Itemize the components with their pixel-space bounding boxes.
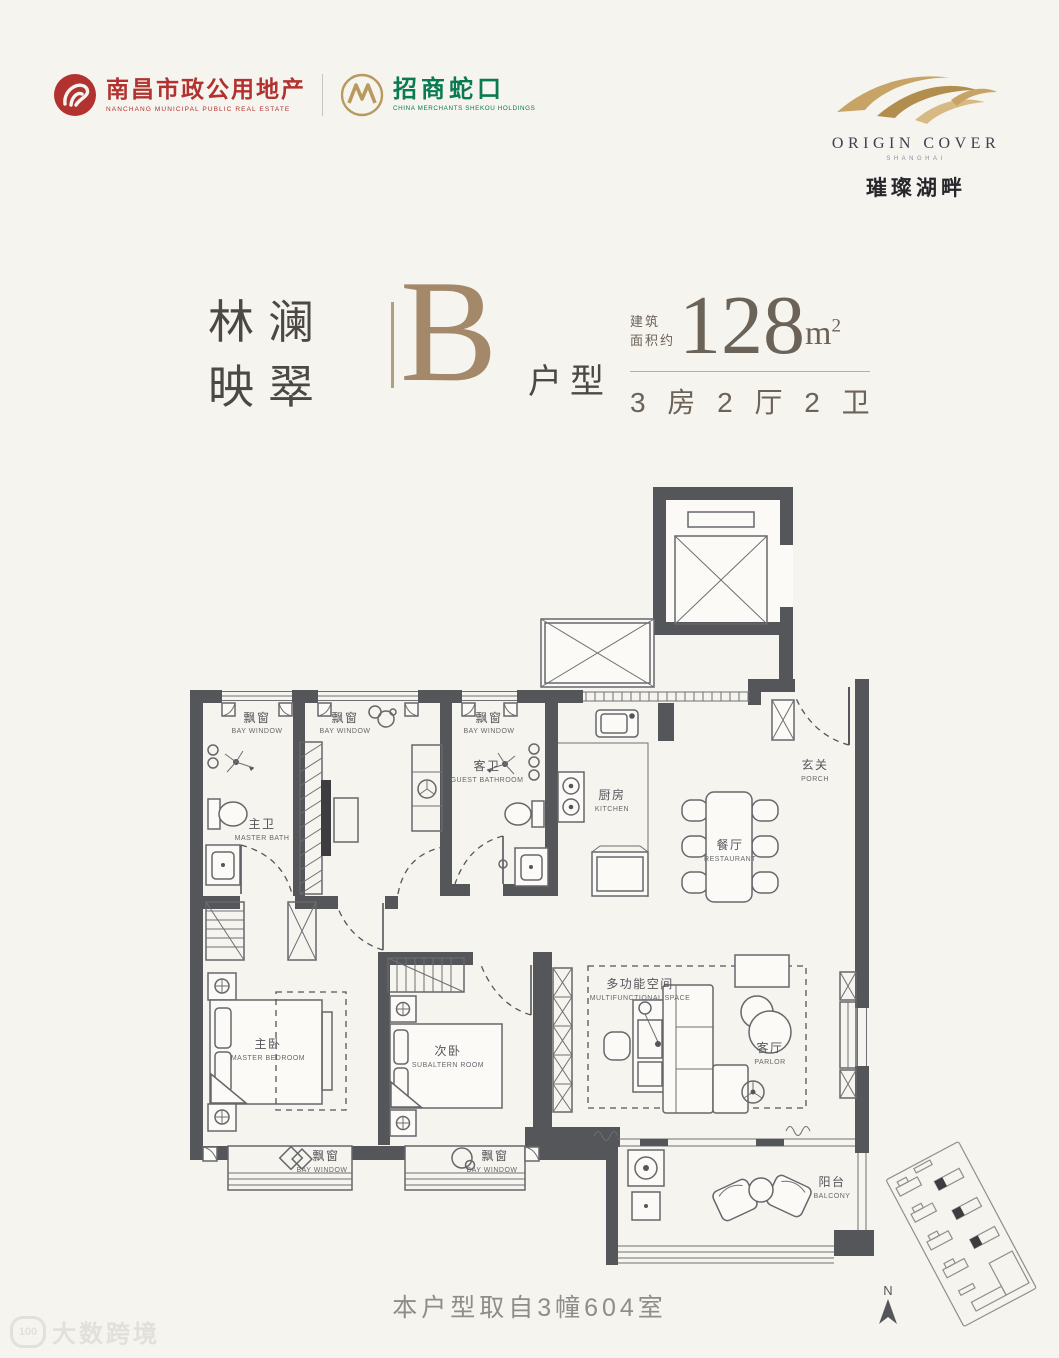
guest-bath-label: 客卫 <box>473 758 500 773</box>
bay-top-1-label: 飘窗 <box>243 711 270 725</box>
diamond-icon <box>280 1147 312 1170</box>
master-bath-fixtures <box>206 745 254 885</box>
bay-bottom-2-label-en: BAY WINDOW <box>466 1167 517 1174</box>
master-bedroom-furniture <box>206 902 346 1131</box>
watermark-logo-icon: 100 <box>10 1316 46 1348</box>
kitchen-fixtures <box>558 710 648 897</box>
porch-label: 玄关 <box>801 757 828 772</box>
watermark: 100 大数跨境 <box>10 1314 160 1349</box>
multifunctional-label: 多功能空间 <box>606 977 674 991</box>
master-bedroom-label-en: MASTER BEDROOM <box>231 1055 305 1062</box>
teddy-icon <box>369 706 396 727</box>
balcony-label-en: BALCONY <box>814 1193 851 1200</box>
restaurant-label: 餐厅 <box>716 837 743 852</box>
parlor-label-en: PARLOR <box>754 1059 785 1066</box>
porch-column <box>772 700 794 740</box>
bay-top-2-label-en: BAY WINDOW <box>319 728 370 735</box>
master-bath-label-en: MASTER BATH <box>235 835 290 842</box>
shower-icon <box>225 751 254 772</box>
watermark-text: 大数跨境 <box>52 1314 160 1349</box>
porch-label-en: PORCH <box>801 776 829 783</box>
guest-bath-label-en: GUEST BATHROOM <box>451 777 524 784</box>
bay-top-1-label-en: BAY WINDOW <box>231 728 282 735</box>
building-core <box>541 487 793 692</box>
kitchen-label-en: KITCHEN <box>595 806 629 813</box>
bay-bottom-1-label-en: BAY WINDOW <box>296 1167 347 1174</box>
parlor-label: 客厅 <box>756 1040 783 1055</box>
bay-top-3-label-en: BAY WINDOW <box>463 728 514 735</box>
bay-bottom-1-label: 飘窗 <box>312 1149 339 1163</box>
kitchen-label: 厨房 <box>598 787 625 802</box>
floorplan-drawing: 飘窗 BAY WINDOW 飘窗 BAY WINDOW 飘窗 BAY WINDO… <box>0 0 1059 1358</box>
parlor-furniture <box>663 955 856 1113</box>
hallway-cabinet <box>553 968 572 1112</box>
dressing-room-furniture <box>300 742 442 894</box>
bay-top-3-label: 飘窗 <box>475 711 502 725</box>
balcony-label: 阳台 <box>818 1174 845 1189</box>
master-bath-label: 主卫 <box>248 817 275 831</box>
poster-page: 南昌市政公用地产 NANCHANG MUNICIPAL PUBLIC REAL … <box>0 0 1059 1358</box>
subaltern-room-label-en: SUBALTERN ROOM <box>412 1062 484 1069</box>
bay-top-2-label: 飘窗 <box>331 711 358 725</box>
master-bedroom-label: 主卧 <box>254 1037 281 1051</box>
subaltern-room-label: 次卧 <box>434 1044 461 1058</box>
restaurant-label-en: RESTAURANT <box>704 856 756 863</box>
multifunctional-label-en: MULTIFUNCTIONAL SPACE <box>590 995 691 1002</box>
bay-bottom-2-label: 飘窗 <box>481 1149 508 1163</box>
